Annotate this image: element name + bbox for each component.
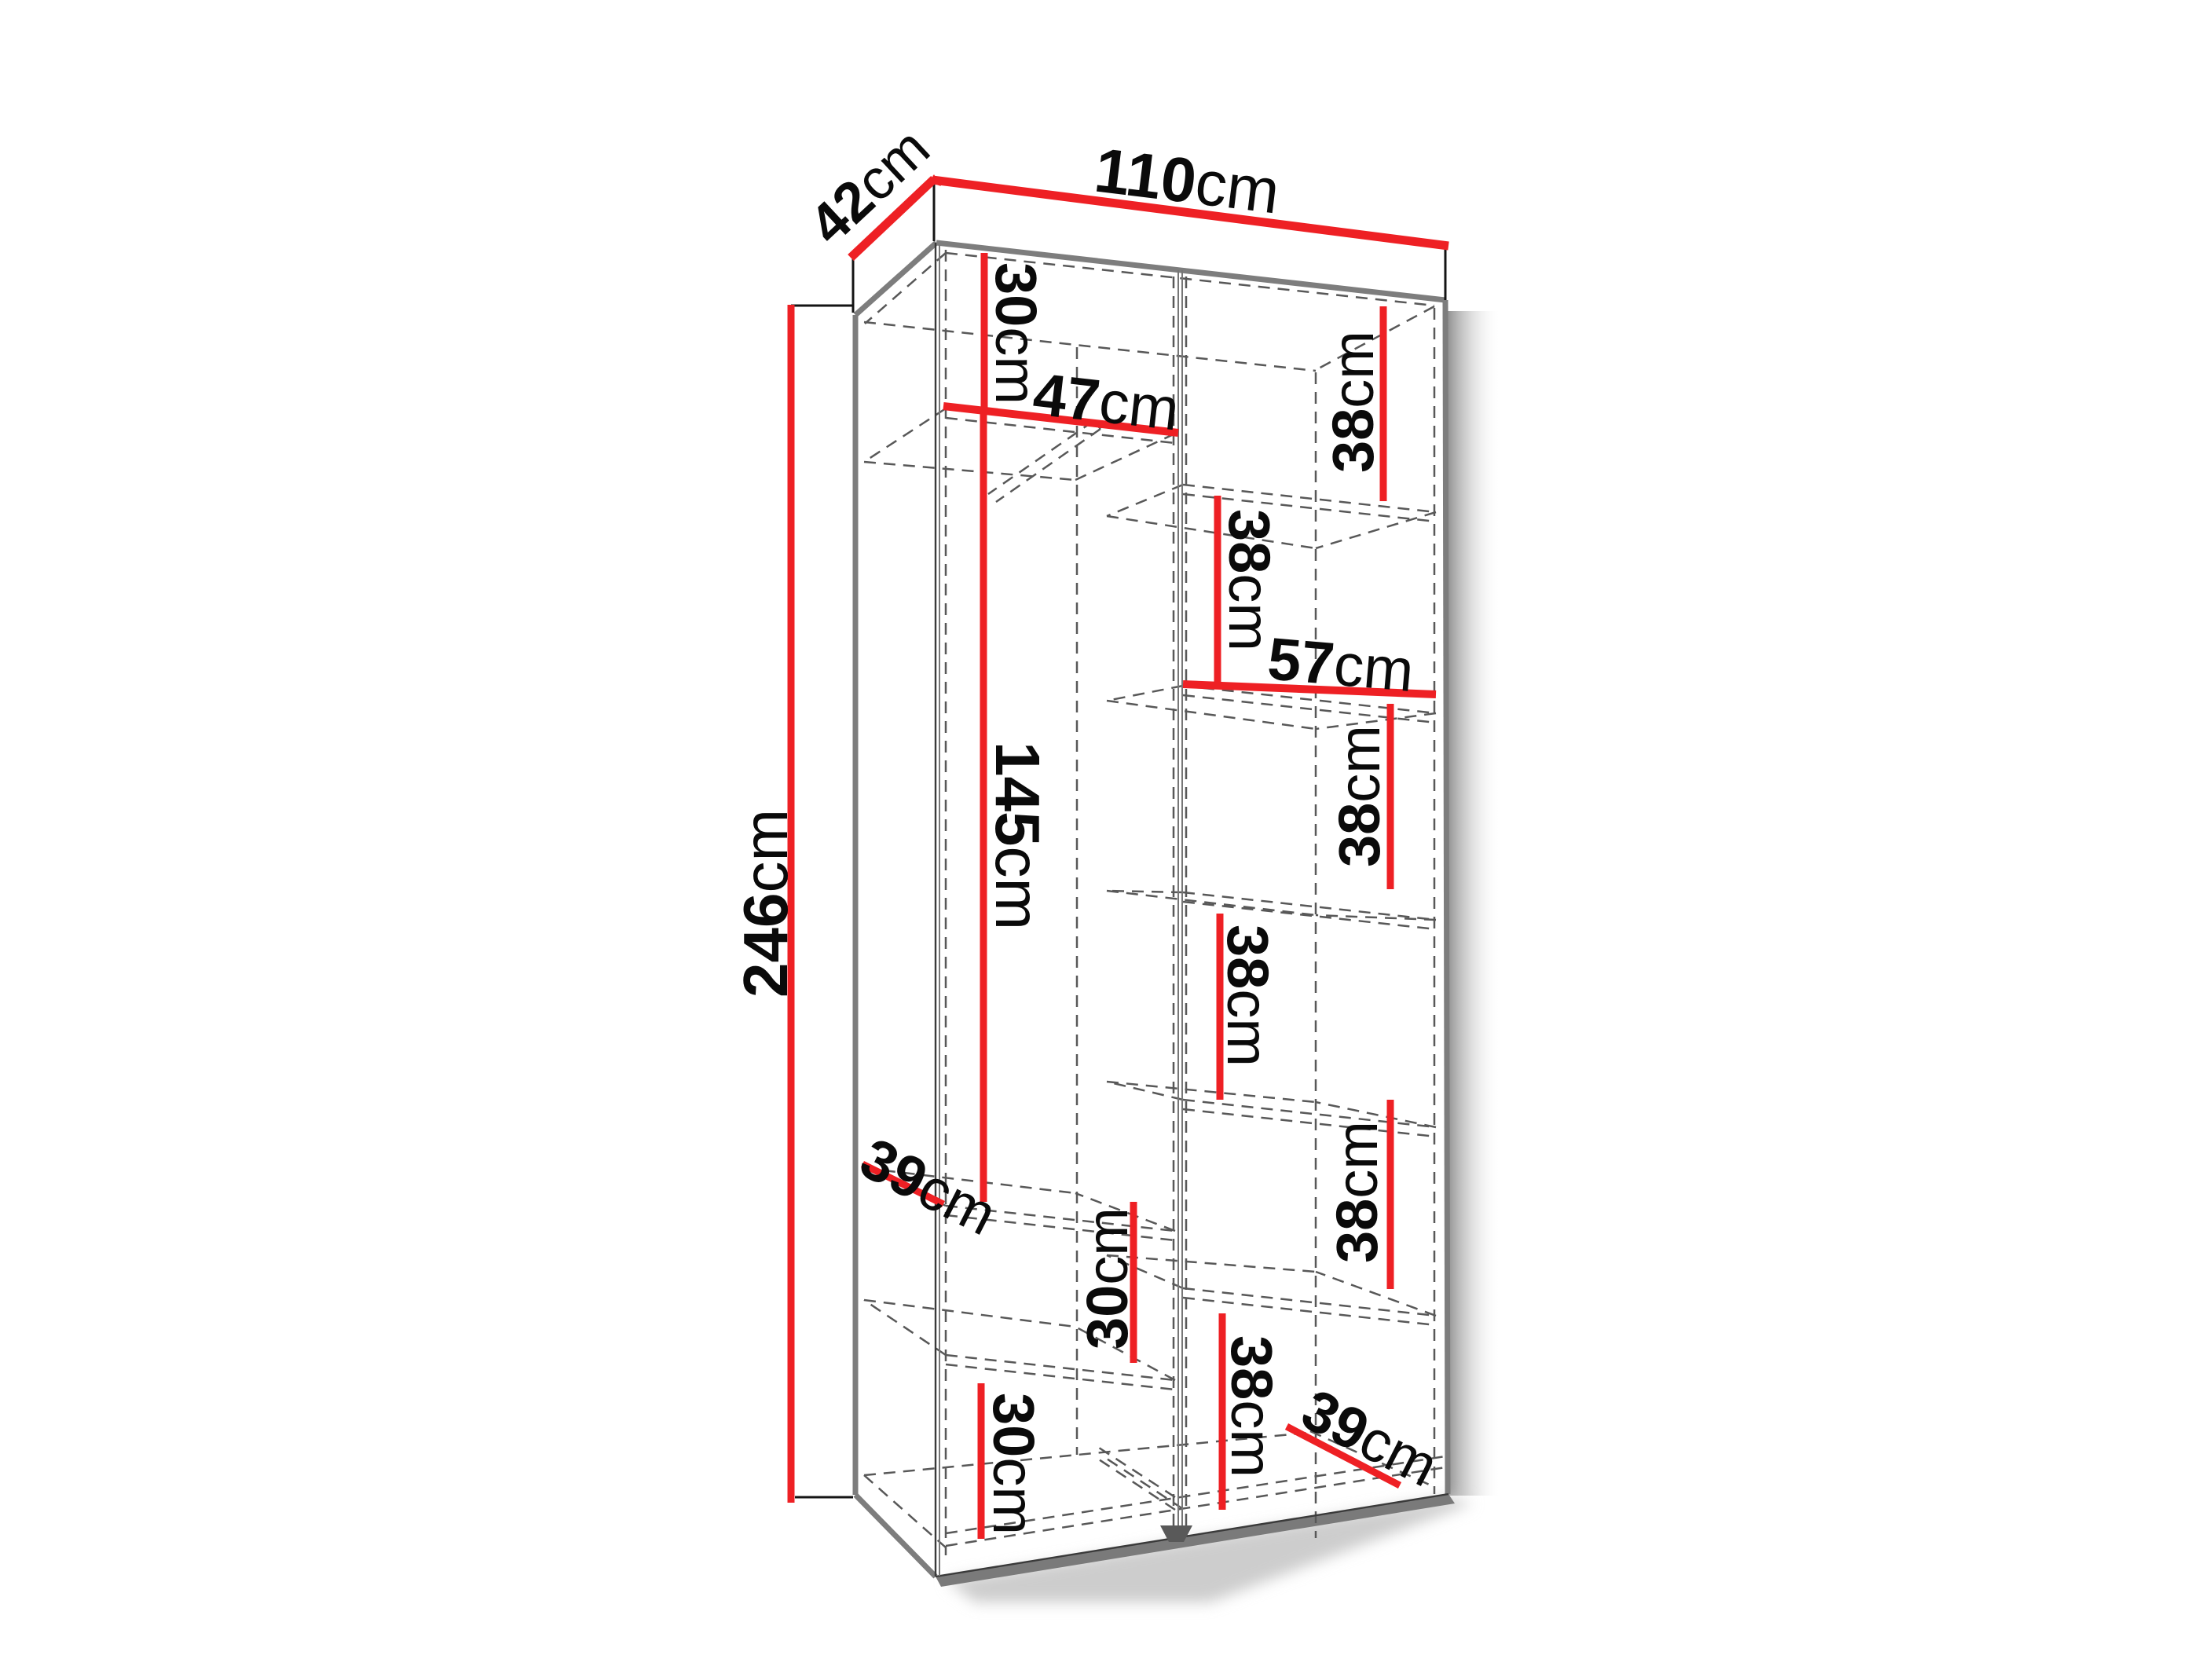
svg-text:246cm: 246cm (731, 809, 800, 998)
svg-text:38cm: 38cm (1215, 925, 1280, 1067)
svg-text:30cm: 30cm (981, 1393, 1046, 1535)
svg-text:30cm: 30cm (1075, 1207, 1140, 1350)
svg-text:145cm: 145cm (983, 742, 1053, 930)
svg-text:57cm: 57cm (1265, 625, 1417, 705)
svg-text:38cm: 38cm (1217, 509, 1282, 651)
svg-text:38cm: 38cm (1324, 1121, 1390, 1263)
svg-text:38cm: 38cm (1219, 1335, 1284, 1478)
svg-text:38cm: 38cm (1327, 725, 1392, 867)
svg-text:38cm: 38cm (1320, 331, 1386, 473)
